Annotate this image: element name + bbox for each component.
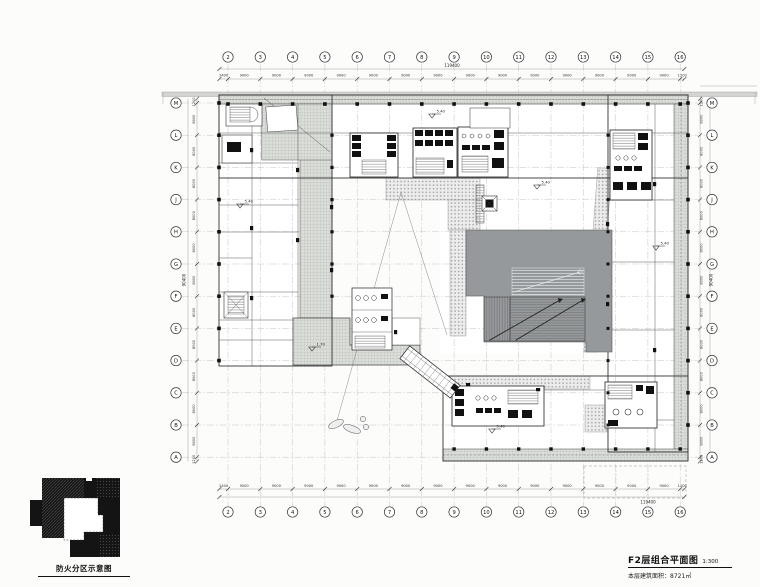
column-marker <box>549 447 552 450</box>
column-marker <box>452 102 456 106</box>
dimension-label: 8000 <box>700 307 704 317</box>
grid-bubble-label: G <box>174 262 178 268</box>
dimension-label: 8000 <box>192 178 196 188</box>
column-marker <box>217 294 221 298</box>
column-marker <box>686 327 690 331</box>
core-south-2 <box>605 382 657 428</box>
grid-bubble-label: A <box>174 455 178 461</box>
dimension-label: 9000 <box>272 74 282 78</box>
grid-bubble-label: A <box>710 455 714 461</box>
column-marker <box>607 327 610 330</box>
toilet-northwest <box>226 104 262 126</box>
dimension-label: 8000 <box>192 275 196 285</box>
fire-zone-inset <box>30 478 120 557</box>
dimension-label: 9000 <box>272 484 282 488</box>
column-marker <box>686 133 690 137</box>
column-marker <box>686 101 690 105</box>
dimension-label: 8000 <box>192 371 196 381</box>
dimension-label: 8000 <box>192 210 196 220</box>
dimension-label: 8000 <box>700 275 704 285</box>
column-marker <box>323 102 327 106</box>
column-marker <box>388 102 392 106</box>
dimension-label: 9000 <box>336 484 346 488</box>
grid-bubble-label: 7 <box>388 55 391 61</box>
title-block: F2层组合平面图 1:300 本层建筑面积：8721㎡ <box>628 553 756 580</box>
dimension-label: 8000 <box>192 146 196 156</box>
dimension-label: 8000 <box>700 371 704 381</box>
grid-bubble-label: B <box>174 423 178 429</box>
column-marker <box>217 327 221 331</box>
dimension-label: 8000 <box>192 307 196 317</box>
drawing-scale: 1:300 <box>702 559 718 565</box>
grid-bubble-label: 15 <box>645 510 652 516</box>
grid-bubble-label: 2 <box>226 55 229 61</box>
grid-bubble-label: L <box>175 133 178 139</box>
shaft-box <box>482 196 497 211</box>
grid-bubble-label: 8 <box>420 510 423 516</box>
dimension-label: 1200 <box>700 454 704 464</box>
grid-bubble-label: 3 <box>259 510 262 516</box>
dimension-label: 9000 <box>304 484 314 488</box>
column-marker <box>607 134 610 137</box>
dimension-label: 8000 <box>192 114 196 124</box>
column-marker <box>686 359 690 363</box>
core-south-1 <box>452 386 544 426</box>
column-marker <box>614 447 617 450</box>
dimension-label: 9000 <box>595 74 605 78</box>
column-marker <box>217 262 221 266</box>
grid-bubble-label: F <box>175 294 178 300</box>
column-marker <box>646 447 649 450</box>
column-marker <box>678 102 682 106</box>
column-marker <box>330 166 333 169</box>
dimension-label: 9000 <box>530 484 540 488</box>
grid-bubble-label: H <box>710 230 714 236</box>
column-marker <box>679 447 682 450</box>
column-marker <box>259 102 263 106</box>
column-marker <box>485 102 489 106</box>
dimension-label: 8000 <box>192 243 196 253</box>
level-marker-label: 1.70 <box>317 342 326 347</box>
level-marker-label: 5.40 <box>245 199 254 204</box>
dimension-label: 8000 <box>700 210 704 220</box>
dimension-label: 2400 <box>219 484 229 488</box>
grid-bubble-label: D <box>174 359 178 365</box>
grid-bubble-label: K <box>174 165 178 171</box>
core-top-2 <box>413 128 457 177</box>
dimension-total: 90400 <box>182 273 187 286</box>
dimension-label: 9000 <box>563 484 573 488</box>
dimension-label: 9000 <box>240 74 250 78</box>
grid-bubble-label: 12 <box>548 510 555 516</box>
dimension-label: 9000 <box>369 74 379 78</box>
column-marker <box>686 294 690 298</box>
column-marker <box>607 166 610 169</box>
dimension-total: 119400 <box>640 500 656 505</box>
dimension-label: 8000 <box>700 146 704 156</box>
grid-bubble-label: 7 <box>388 510 391 516</box>
column-marker <box>582 102 586 106</box>
grid-bubble-label: K <box>710 165 714 171</box>
floor-area-label: 本层建筑面积：8721㎡ <box>628 571 756 580</box>
level-marker-label: 5.40 <box>542 180 551 185</box>
dimension-label: 9000 <box>401 74 411 78</box>
grid-bubble-label: E <box>710 326 713 332</box>
column-marker <box>582 447 585 450</box>
room-skewed <box>266 105 298 132</box>
grid-bubble-label: 15 <box>645 55 652 61</box>
grid-bubble-label: 9 <box>452 55 455 61</box>
dimension-label: 1200 <box>700 97 704 107</box>
grid-bubble-label: 14 <box>612 55 619 61</box>
dimension-total: 90400 <box>709 273 714 286</box>
dimension-label: 9000 <box>498 74 508 78</box>
grid-bubble-label: 13 <box>580 510 587 516</box>
level-marker-label: 5.40 <box>497 424 506 429</box>
dimension-label: 8000 <box>700 436 704 446</box>
core-east <box>610 130 652 200</box>
atrium-upper-stair <box>512 268 584 295</box>
dimension-label: 8000 <box>700 114 704 124</box>
dimension-label: 9000 <box>401 484 411 488</box>
grid-bubble-label: 2 <box>226 510 229 516</box>
column-marker <box>217 133 221 137</box>
dimension-label: 8000 <box>192 436 196 446</box>
grid-bubble-label: 5 <box>323 55 326 61</box>
dimension-label: 9000 <box>336 74 346 78</box>
grid-bubble-label: 10 <box>483 55 490 61</box>
grid-bubble-label: G <box>710 262 714 268</box>
title-row: F2层组合平面图 1:300 <box>628 553 732 568</box>
grid-bubble-label: 12 <box>548 55 555 61</box>
column-marker <box>686 198 690 202</box>
dimension-label: 8000 <box>192 404 196 414</box>
grid-bubble-label: F <box>711 294 714 300</box>
column-marker <box>607 295 610 298</box>
dimension-label: 9000 <box>466 484 476 488</box>
column-marker <box>217 230 221 234</box>
dimension-label: 9000 <box>433 484 443 488</box>
grid-bubble-label: 13 <box>580 55 587 61</box>
grid-bubble-label: 6 <box>356 510 359 516</box>
dimension-label: 9000 <box>595 484 605 488</box>
dimension-label: 1200 <box>678 74 688 78</box>
grid-bubble-label: 3 <box>259 55 262 61</box>
dimension-label: 1200 <box>678 484 688 488</box>
dimension-label: 9000 <box>240 484 250 488</box>
grid-bubble-label: M <box>710 101 714 107</box>
grid-bubble-label: D <box>710 359 714 365</box>
grid-bubble-label: 16 <box>677 510 684 516</box>
dimension-label: 9000 <box>530 74 540 78</box>
dimension-label: 1200 <box>192 454 196 464</box>
level-marker-label: 5.40 <box>661 241 670 246</box>
grid-bubble-label: E <box>174 326 177 332</box>
column-marker <box>291 102 295 106</box>
grid-bubble-label: C <box>710 391 714 397</box>
toilet-block-west <box>352 288 392 350</box>
grid-bubble-label: 6 <box>356 55 359 61</box>
dimension-label: 8000 <box>700 178 704 188</box>
fire-zone-inset-label: 防火分区示意图 <box>38 563 130 577</box>
dimension-label: 8000 <box>700 404 704 414</box>
dimension-label: 9000 <box>466 74 476 78</box>
column-marker <box>607 359 610 362</box>
column-marker <box>686 391 690 395</box>
drawing-title: F2层组合平面图 <box>628 553 698 566</box>
grid-bubble-label: 11 <box>515 55 522 61</box>
core-top-1 <box>350 133 398 177</box>
column-marker <box>607 263 610 266</box>
grid-bubble-label: 8 <box>420 55 423 61</box>
lower-canopy-dashed <box>584 466 686 498</box>
column-marker <box>330 198 333 201</box>
paved-corridor <box>386 178 480 200</box>
column-marker <box>607 424 610 427</box>
column-marker <box>330 295 333 298</box>
column-marker <box>217 166 221 170</box>
grid-bubble-label: H <box>174 230 178 236</box>
dimension-label: 8000 <box>700 243 704 253</box>
grid-bubble-label: 10 <box>483 510 490 516</box>
column-marker <box>607 391 610 394</box>
level-marker-label: 5.40 <box>437 109 446 114</box>
column-marker <box>330 230 333 233</box>
column-marker <box>420 102 424 106</box>
grid-bubble-label: 11 <box>515 510 522 516</box>
grid-bubble-label: 14 <box>612 510 619 516</box>
column-marker <box>549 102 553 106</box>
grid-bubble-label: 5 <box>323 510 326 516</box>
column-marker <box>686 230 690 234</box>
dimension-label: 9000 <box>563 74 573 78</box>
dimension-label: 8000 <box>192 339 196 349</box>
column-marker <box>330 262 333 265</box>
dimension-label: 9000 <box>498 484 508 488</box>
column-marker <box>355 102 359 106</box>
column-marker <box>217 198 221 202</box>
column-marker <box>686 262 690 266</box>
dimension-label: 9000 <box>627 484 637 488</box>
dimension-total: 119400 <box>444 63 460 68</box>
column-marker <box>686 166 690 170</box>
grid-bubble-label: M <box>174 101 178 107</box>
dimension-label: 9000 <box>433 74 443 78</box>
dimension-label: 2400 <box>219 74 229 78</box>
grand-stair <box>484 297 586 341</box>
dimension-label: 9000 <box>659 74 669 78</box>
column-marker <box>226 102 230 106</box>
room-northwest <box>222 135 252 163</box>
column-marker <box>330 134 333 137</box>
column-marker <box>452 447 455 450</box>
drawing-sheet: 2400900090009000900090009000900090009000… <box>0 0 760 587</box>
column-marker <box>217 359 221 363</box>
grid-bubble-label: 16 <box>677 55 684 61</box>
dimension-label: 9000 <box>304 74 314 78</box>
lift-west <box>224 292 248 318</box>
grid-bubble-label: L <box>711 133 714 139</box>
dimension-label: 9000 <box>627 74 637 78</box>
dimension-label: 8000 <box>700 339 704 349</box>
column-marker <box>607 198 610 201</box>
column-marker <box>614 102 618 106</box>
grid-bubble-label: 9 <box>452 510 455 516</box>
column-marker <box>686 423 690 427</box>
furniture-group <box>327 416 369 435</box>
grid-bubble-label: C <box>174 391 178 397</box>
grid-bubble-label: B <box>710 423 714 429</box>
floor-plan-canvas: 2400900090009000900090009000900090009000… <box>0 0 760 587</box>
column-marker <box>646 102 650 106</box>
dimension-label: 9000 <box>659 484 669 488</box>
dimension-label: 1200 <box>192 97 196 107</box>
dimension-label: 9000 <box>369 484 379 488</box>
column-marker <box>485 447 488 450</box>
column-marker <box>217 101 221 105</box>
column-marker <box>517 447 520 450</box>
column-marker <box>517 102 521 106</box>
column-marker <box>607 230 610 233</box>
